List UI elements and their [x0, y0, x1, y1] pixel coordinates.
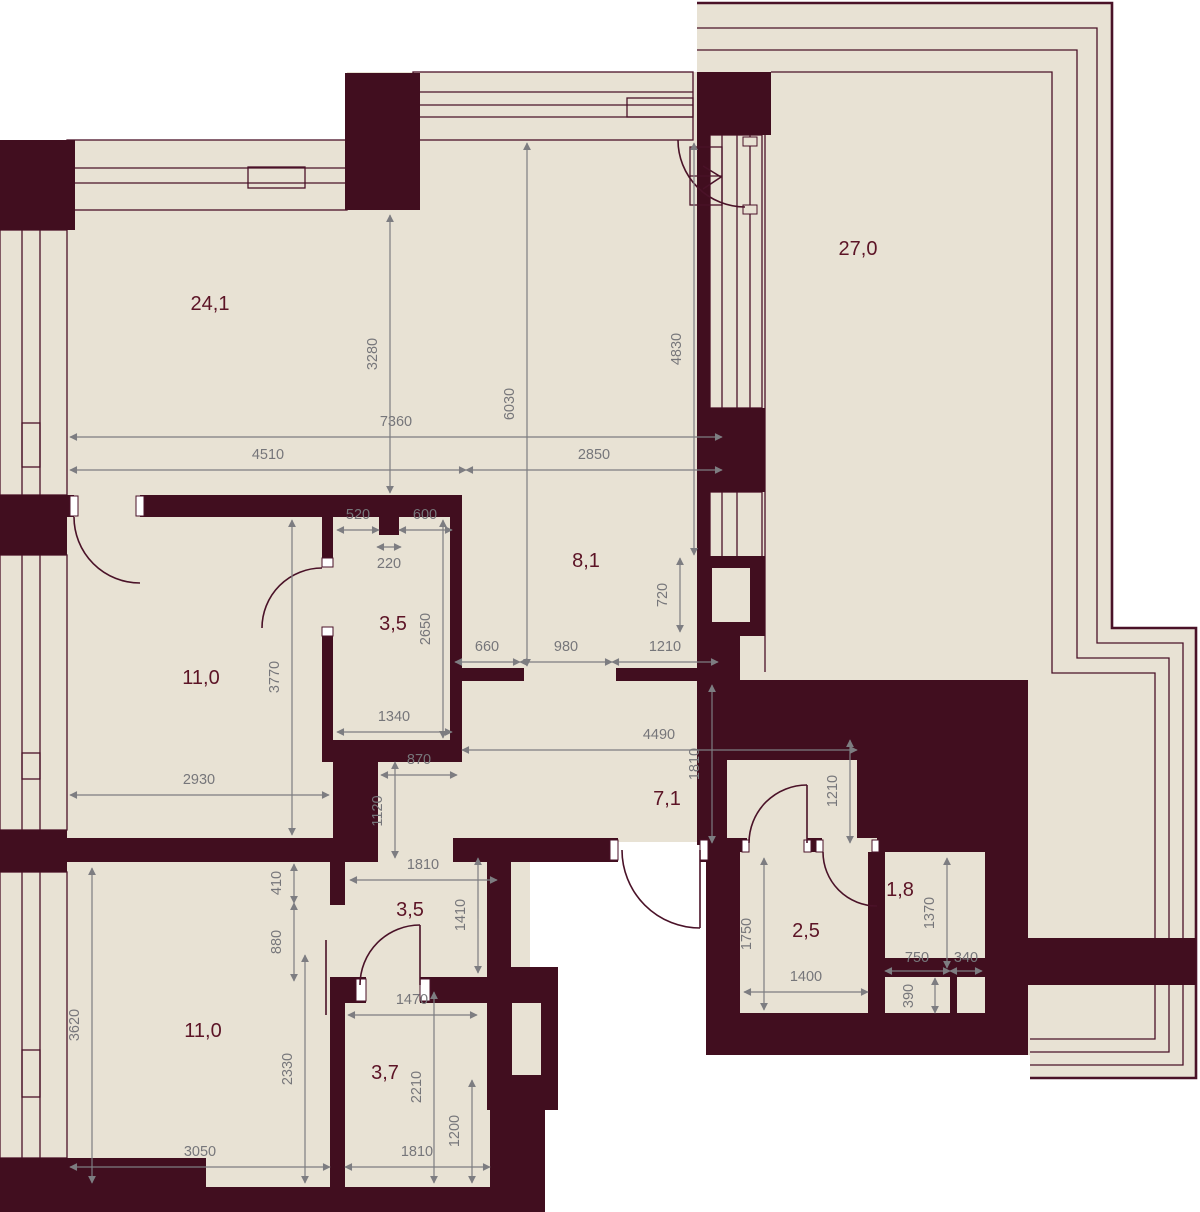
door-jamb [816, 840, 823, 852]
wall-segment [0, 495, 67, 555]
wall-parapet [1028, 938, 1196, 985]
dim-label: 870 [407, 752, 431, 768]
dim-label: 1810 [407, 857, 439, 873]
door-jamb [872, 840, 879, 852]
dim-label: 1200 [447, 1115, 463, 1147]
dim-label: 2210 [409, 1071, 425, 1103]
dim-label: 660 [475, 639, 499, 655]
dim-label: 1340 [378, 709, 410, 725]
wall-segment [345, 73, 420, 210]
room-label-bathroom: 3,5 [396, 899, 424, 921]
floor-plan-page: 3280 6030 4830 7360 4510 2850 520 600 22… [0, 0, 1200, 1212]
dim-label: 980 [554, 639, 578, 655]
wall-segment [330, 982, 345, 1003]
wall-segment [330, 862, 345, 905]
dim-label: 1470 [396, 992, 428, 1008]
door-arc-landing [622, 850, 700, 928]
dim-label: 1210 [825, 775, 841, 807]
wall-segment [452, 668, 524, 681]
room-label-hall: 8,1 [572, 550, 600, 572]
dim-label: 220 [377, 556, 401, 572]
wall-segment [487, 850, 511, 967]
dim-label: 3050 [184, 1144, 216, 1160]
room-label-bedroom-1: 11,0 [182, 667, 219, 689]
wall-segment [322, 629, 333, 742]
wall-segment [722, 680, 857, 760]
dim-label: 520 [346, 507, 370, 523]
dim-label: 600 [413, 507, 437, 523]
shaft-jamb [743, 137, 757, 146]
room-label-corridor: 7,1 [653, 788, 681, 810]
wall-segment [950, 977, 957, 1013]
niche-duct [512, 1003, 541, 1075]
wall-segment [710, 408, 765, 492]
floor-mid-band [0, 497, 462, 862]
room-label-laundry: 3,7 [371, 1062, 399, 1084]
dim-label: 3770 [267, 661, 283, 693]
dim-label: 720 [655, 583, 671, 607]
wall-segment [67, 838, 378, 862]
wall-segment [0, 830, 67, 872]
wall-segment [697, 72, 771, 135]
room-label-terrace: 27,0 [839, 238, 878, 260]
wall-segment [379, 517, 399, 535]
wall-segment [706, 852, 740, 1055]
dim-label: 4490 [643, 727, 675, 743]
dim-label: 410 [269, 871, 285, 895]
dim-label: 2930 [183, 772, 215, 788]
dim-label: 6030 [502, 388, 518, 420]
door-jamb [136, 496, 144, 516]
dim-label: 2850 [578, 447, 610, 463]
dim-label: 4830 [669, 333, 685, 365]
room-label-living: 24,1 [191, 293, 230, 315]
dim-label: 880 [269, 930, 285, 954]
dim-label: 1810 [687, 748, 703, 780]
dim-label: 1410 [453, 899, 469, 931]
floor-plan-canvas: 3280 6030 4830 7360 4510 2850 520 600 22… [0, 0, 1200, 1212]
dim-label: 2330 [280, 1053, 296, 1085]
wall-segment [0, 1187, 530, 1212]
dim-label: 1370 [922, 897, 938, 929]
wall-segment [718, 1013, 1028, 1055]
dim-label: 7360 [380, 414, 412, 430]
door-jamb [322, 627, 333, 636]
dim-label: 1210 [649, 639, 681, 655]
dim-label: 1750 [739, 918, 755, 950]
wall-segment [868, 852, 885, 1013]
door-jamb [322, 558, 333, 567]
wall-segment [322, 740, 462, 762]
wall-segment [616, 668, 722, 681]
dim-label: 3620 [67, 1009, 83, 1041]
room-label-closet: 3,5 [379, 613, 407, 635]
dim-label: 1120 [370, 795, 386, 826]
dim-label: 1810 [401, 1144, 433, 1160]
door-jamb [356, 979, 366, 1001]
dim-label: 2650 [418, 613, 434, 645]
door-jamb [700, 840, 708, 860]
shaft-jamb [743, 205, 757, 214]
dim-label: 750 [905, 950, 929, 966]
door-jamb [742, 840, 749, 852]
dim-label: 3280 [365, 338, 381, 370]
dim-label: 390 [901, 984, 917, 1008]
room-label-storage: 1,8 [886, 879, 914, 901]
door-jamb [610, 840, 618, 860]
niche-duct-2 [957, 977, 985, 1013]
niche-recess [712, 568, 750, 622]
wall-segment [490, 1102, 545, 1212]
room-label-bedroom-2: 11,0 [184, 1020, 221, 1042]
door-jamb [70, 496, 78, 516]
dim-label: 1400 [790, 969, 822, 985]
wall-segment [450, 495, 462, 762]
wall-segment [0, 140, 75, 230]
wall-segment [330, 1003, 345, 1187]
wall-segment [918, 798, 1028, 840]
room-label-wc: 2,5 [792, 920, 820, 942]
dim-label: 4510 [252, 447, 284, 463]
dim-label: 340 [954, 950, 978, 966]
